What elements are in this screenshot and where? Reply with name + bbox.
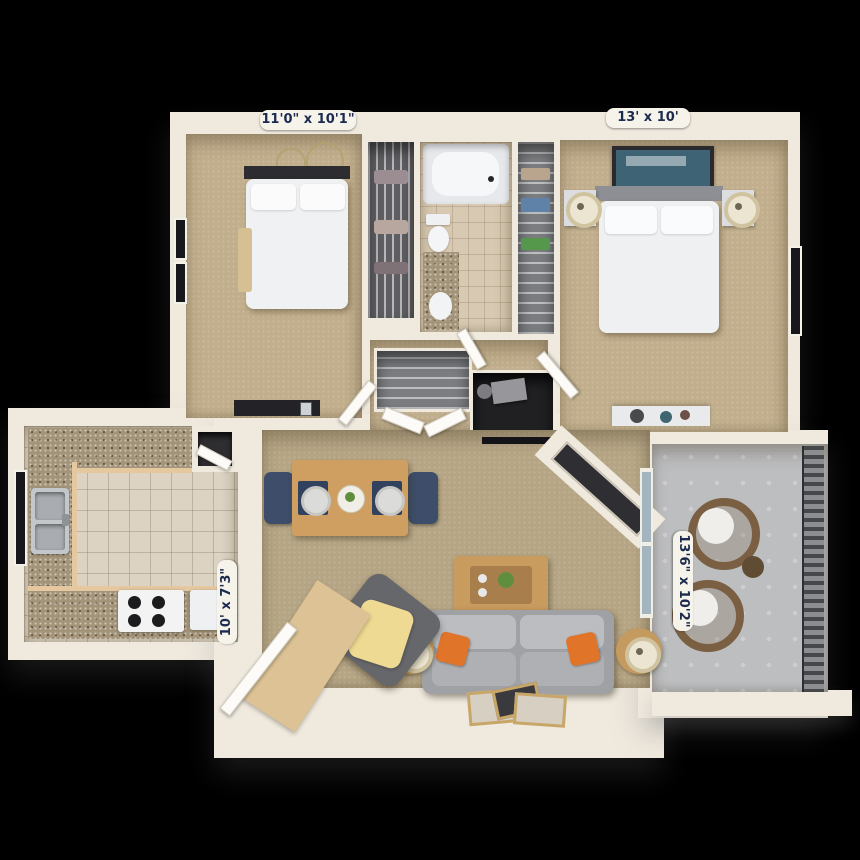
table-lamp [566,192,602,228]
floor-lamp-finial [636,648,643,655]
faucet [62,514,69,526]
cup [478,588,487,597]
bed-headboard [244,166,350,179]
balcony-ledge [652,690,852,716]
dresser-item [680,410,690,420]
bathtub-basin [432,152,499,196]
stove-burner [128,614,141,627]
dimension-label-bedroom-left: 11'0" x 10'1" [260,110,356,130]
flower-centerpiece-greenery [345,492,355,502]
closet-clothes [521,168,550,180]
table-lamp-finial [735,203,742,210]
linen-closet [374,348,472,412]
closet-clothes [374,170,408,184]
dining-chair [408,472,438,524]
window [174,262,187,304]
dresser-item [660,411,672,423]
table-lamp [724,192,760,228]
toilet-tank [426,214,450,225]
toilet [428,226,449,252]
table-lamp-finial [577,203,584,210]
stove-burner [152,614,165,627]
sliding-door-glass [642,546,651,614]
potted-plant [498,572,514,588]
dimension-label-living-room: 13'6" x 10'2" [673,531,693,631]
floor-plan-canvas: 11'0" x 10'1" 13' x 10' 10' x 7'3" 13'6"… [0,0,860,860]
water-heater [491,378,528,405]
closet-clothes [521,198,550,212]
sliding-door-glass [642,472,651,542]
dimension-label-bedroom-right: 13' x 10' [606,108,690,128]
stove-burner [152,596,165,609]
window [14,470,27,566]
wall-art-highlight [626,156,686,166]
leaning-picture-frame [513,692,567,728]
window [789,246,802,336]
pillow [661,206,713,234]
vanity-sink [429,292,452,320]
patio-table [742,556,764,578]
floor-lamp [625,637,661,673]
stove [118,590,184,632]
closet-clothes [374,220,408,234]
photo-frame [300,402,312,416]
cup [478,574,487,583]
patio-chair-cushion [698,508,734,544]
dining-chair [264,472,294,524]
plate [301,486,331,516]
closet-clothes [374,262,408,274]
balcony-railing [802,446,824,692]
dimension-label-kitchen: 10' x 7'3" [217,560,237,644]
pillow [251,184,296,210]
plate [375,486,405,516]
closet-clothes [521,238,550,250]
window [174,218,187,260]
pillow [300,184,345,210]
stove-burner [128,596,141,609]
bed-headboard [595,186,723,201]
pillow [605,206,657,234]
sink-basin [35,492,65,520]
sink-basin [35,524,65,550]
dresser-item [630,409,644,423]
bathtub-drain [488,176,494,182]
utility-tank [477,384,492,399]
accent-pillow [565,631,601,667]
bed-throw [238,228,252,292]
